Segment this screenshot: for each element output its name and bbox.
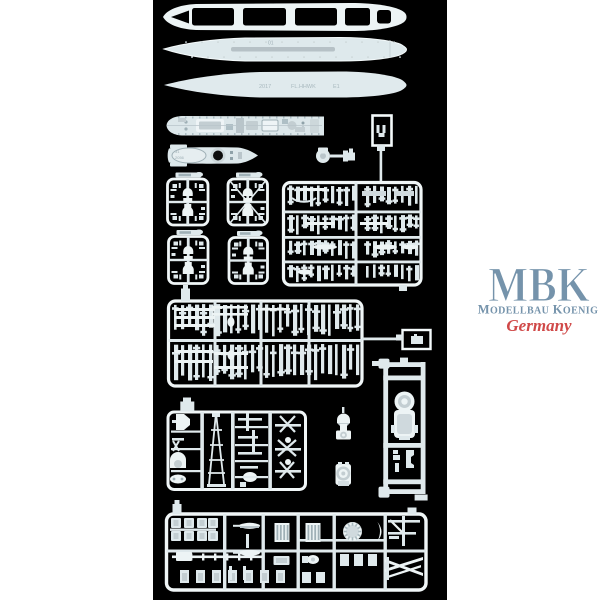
- svg-text:31: 31: [175, 149, 180, 154]
- svg-text:2056: 2056: [175, 155, 185, 160]
- svg-text:2017: 2017: [259, 84, 271, 90]
- svg-text:Germany: Germany: [506, 316, 572, 335]
- svg-text:MBK: MBK: [488, 256, 590, 312]
- svg-text:MODELLBAU KOENIG: MODELLBAU KOENIG: [478, 303, 599, 317]
- svg-text:01: 01: [268, 41, 274, 47]
- svg-text:E1: E1: [333, 84, 340, 90]
- svg-text:FL.HHWK: FL.HHWK: [291, 84, 316, 90]
